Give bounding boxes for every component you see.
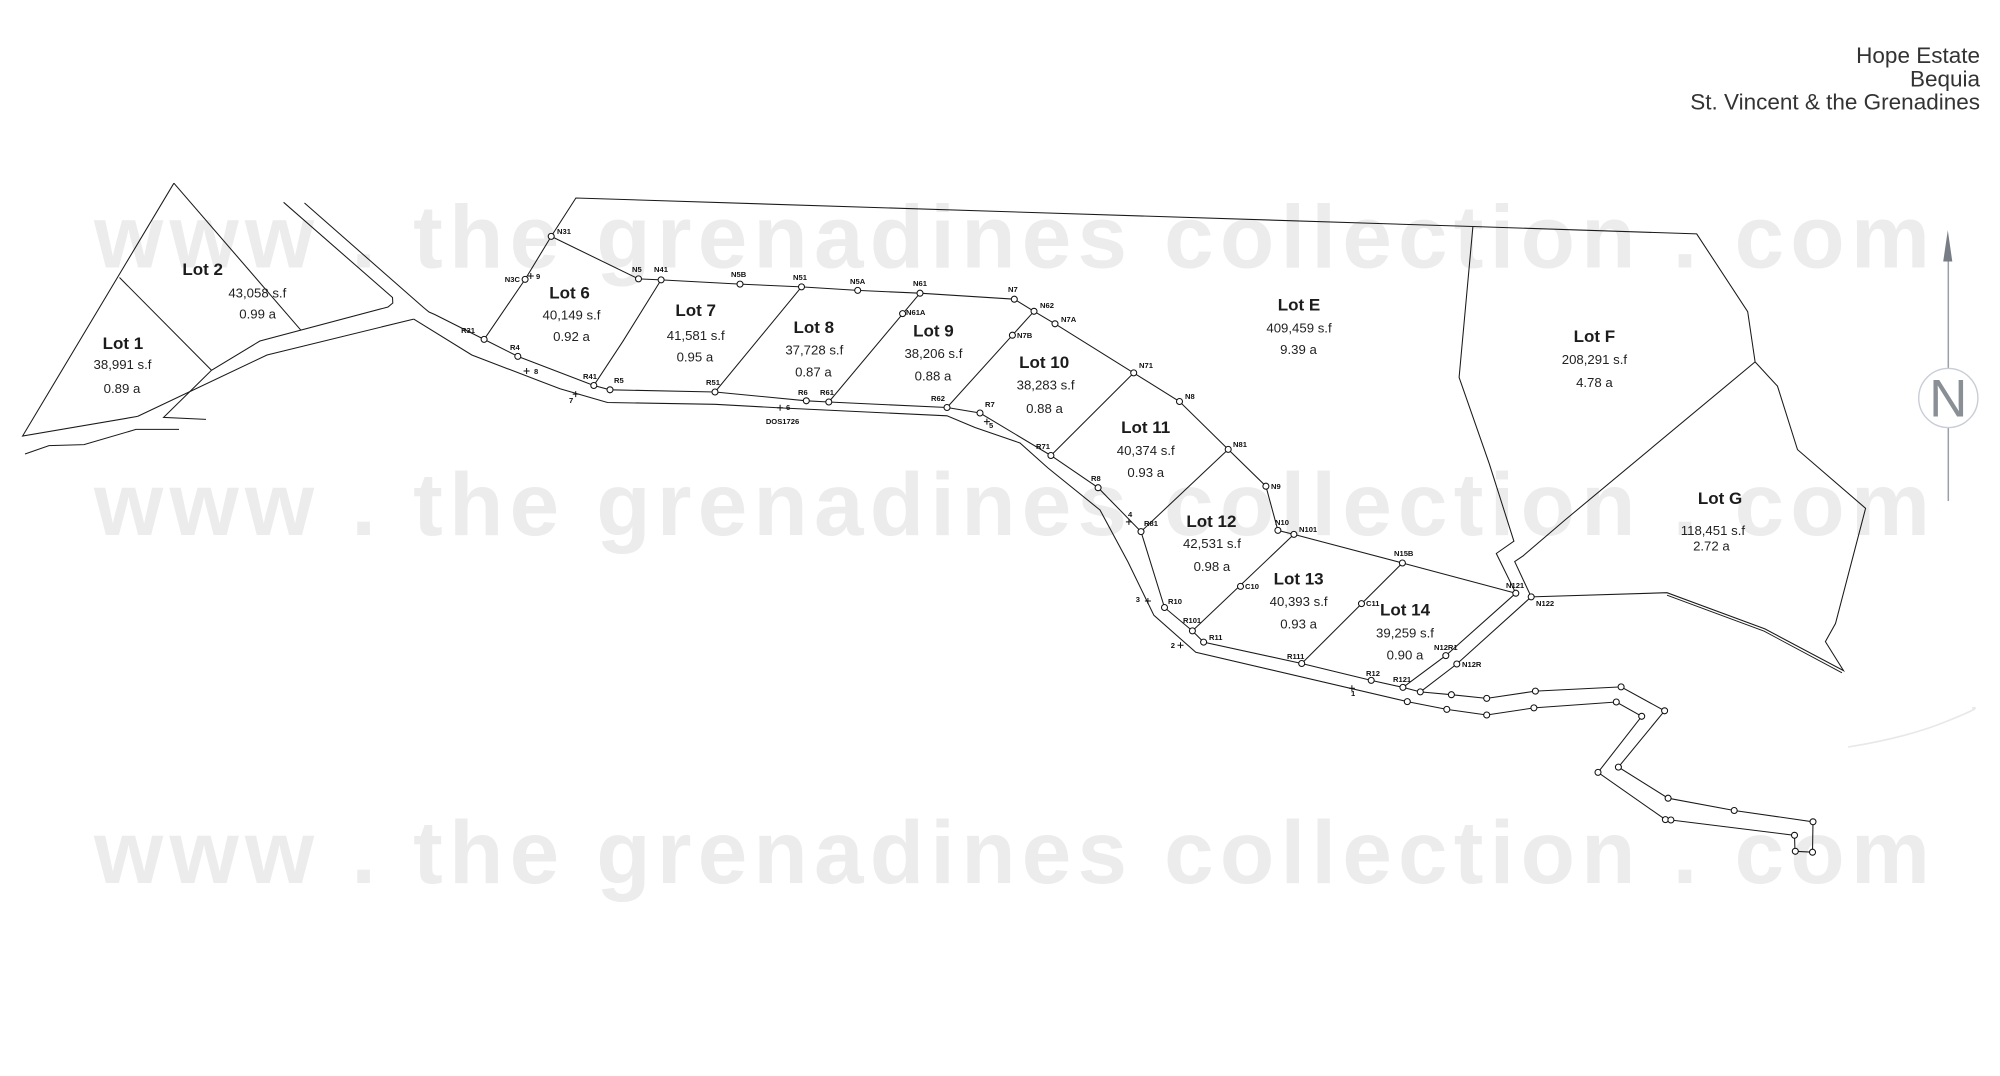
svg-text:N8: N8 bbox=[1185, 392, 1195, 401]
svg-text:N7A: N7A bbox=[1061, 315, 1077, 324]
svg-text:Lot 14: Lot 14 bbox=[1380, 601, 1431, 620]
svg-text:6: 6 bbox=[786, 403, 790, 412]
svg-text:Lot G: Lot G bbox=[1698, 489, 1742, 508]
svg-text:R10: R10 bbox=[1168, 597, 1182, 606]
svg-text:R51: R51 bbox=[706, 378, 721, 387]
svg-text:Lot 6: Lot 6 bbox=[549, 283, 590, 302]
svg-text:409,459 s.f: 409,459 s.f bbox=[1266, 321, 1332, 336]
svg-text:41,581 s.f: 41,581 s.f bbox=[667, 328, 725, 343]
svg-text:40,149 s.f: 40,149 s.f bbox=[543, 307, 601, 322]
svg-text:R7: R7 bbox=[985, 400, 995, 409]
svg-text:N3C: N3C bbox=[505, 275, 521, 284]
svg-text:R41: R41 bbox=[583, 372, 598, 381]
svg-text:R12: R12 bbox=[1366, 669, 1380, 678]
svg-text:Lot F: Lot F bbox=[1574, 327, 1616, 346]
svg-text:Lot 9: Lot 9 bbox=[913, 321, 954, 340]
svg-text:R62: R62 bbox=[931, 394, 945, 403]
svg-text:N7B: N7B bbox=[1017, 331, 1033, 340]
svg-text:N5B: N5B bbox=[731, 270, 747, 279]
svg-text:43,058 s.f: 43,058 s.f bbox=[228, 285, 286, 300]
svg-text:Lot 13: Lot 13 bbox=[1274, 569, 1324, 588]
svg-text:Lot 10: Lot 10 bbox=[1019, 353, 1069, 372]
svg-text:0.93 a: 0.93 a bbox=[1127, 465, 1164, 480]
svg-text:0.92 a: 0.92 a bbox=[553, 329, 590, 344]
svg-text:C11: C11 bbox=[1366, 599, 1380, 608]
svg-text:www . the grenadines collectio: www . the grenadines collection . com bbox=[93, 802, 1930, 902]
svg-text:Lot E: Lot E bbox=[1278, 296, 1321, 315]
svg-text:0.95 a: 0.95 a bbox=[677, 349, 714, 364]
svg-text:208,291 s.f: 208,291 s.f bbox=[1562, 352, 1628, 367]
svg-text:N121: N121 bbox=[1506, 581, 1525, 590]
svg-text:3: 3 bbox=[1136, 595, 1140, 604]
svg-text:Hope Estate: Hope Estate bbox=[1856, 43, 1980, 68]
svg-text:N71: N71 bbox=[1139, 361, 1154, 370]
svg-text:38,991 s.f: 38,991 s.f bbox=[94, 357, 152, 372]
svg-text:N15B: N15B bbox=[1394, 549, 1414, 558]
svg-text:39,259 s.f: 39,259 s.f bbox=[1376, 625, 1434, 640]
svg-text:N5A: N5A bbox=[850, 277, 866, 286]
svg-text:9: 9 bbox=[536, 272, 540, 281]
svg-text:R81: R81 bbox=[1144, 519, 1159, 528]
svg-text:Lot 7: Lot 7 bbox=[675, 301, 716, 320]
svg-text:N7: N7 bbox=[1008, 285, 1018, 294]
svg-text:Lot 11: Lot 11 bbox=[1121, 418, 1170, 437]
svg-text:N122: N122 bbox=[1536, 599, 1554, 608]
svg-text:Lot 12: Lot 12 bbox=[1186, 512, 1236, 531]
svg-text:R31: R31 bbox=[461, 326, 476, 335]
svg-text:0.89 a: 0.89 a bbox=[104, 381, 141, 396]
svg-text:www . the grenadines collectio: www . the grenadines collection . com bbox=[93, 187, 1930, 287]
svg-text:N61A: N61A bbox=[906, 308, 926, 317]
svg-text:N62: N62 bbox=[1040, 301, 1054, 310]
svg-text:C10: C10 bbox=[1245, 582, 1259, 591]
svg-text:N51: N51 bbox=[793, 273, 808, 282]
svg-text:N81: N81 bbox=[1233, 440, 1248, 449]
svg-text:R71: R71 bbox=[1036, 442, 1051, 451]
svg-text:N5: N5 bbox=[632, 265, 642, 274]
svg-text:R61: R61 bbox=[820, 388, 835, 397]
svg-text:N61: N61 bbox=[913, 279, 928, 288]
svg-text:0.87 a: 0.87 a bbox=[795, 365, 832, 380]
svg-text:www . the grenadines collectio: www . the grenadines collection . com bbox=[93, 454, 1930, 554]
svg-text:118,451 s.f: 118,451 s.f bbox=[1681, 523, 1746, 538]
svg-text:DOS1726: DOS1726 bbox=[766, 417, 799, 426]
svg-text:R4: R4 bbox=[510, 343, 520, 352]
svg-text:N31: N31 bbox=[557, 227, 572, 236]
svg-text:N9: N9 bbox=[1271, 482, 1281, 491]
svg-text:0.99 a: 0.99 a bbox=[239, 307, 276, 322]
svg-text:9.39 a: 9.39 a bbox=[1280, 342, 1317, 357]
svg-text:0.93 a: 0.93 a bbox=[1280, 616, 1317, 631]
svg-text:0.88 a: 0.88 a bbox=[1026, 401, 1063, 416]
svg-text:38,283 s.f: 38,283 s.f bbox=[1017, 378, 1075, 393]
svg-text:N12R1: N12R1 bbox=[1434, 643, 1458, 652]
svg-text:R121: R121 bbox=[1393, 675, 1412, 684]
svg-text:Lot 8: Lot 8 bbox=[793, 318, 834, 337]
svg-text:N10: N10 bbox=[1275, 518, 1289, 527]
svg-text:N101: N101 bbox=[1299, 525, 1318, 534]
svg-text:Bequia: Bequia bbox=[1910, 66, 1981, 91]
svg-text:2: 2 bbox=[1171, 641, 1175, 650]
svg-text:Lot 2: Lot 2 bbox=[182, 260, 223, 279]
svg-text:St. Vincent & the Grenadines: St. Vincent & the Grenadines bbox=[1690, 90, 1980, 115]
svg-text:N12R: N12R bbox=[1462, 660, 1482, 669]
svg-text:42,531 s.f: 42,531 s.f bbox=[1183, 536, 1241, 551]
svg-text:40,393 s.f: 40,393 s.f bbox=[1270, 594, 1328, 609]
svg-text:4.78 a: 4.78 a bbox=[1576, 375, 1613, 390]
svg-text:0.88 a: 0.88 a bbox=[915, 369, 952, 384]
svg-text:R111: R111 bbox=[1287, 652, 1305, 661]
svg-text:40,374 s.f: 40,374 s.f bbox=[1117, 443, 1175, 458]
svg-text:R8: R8 bbox=[1091, 474, 1101, 483]
svg-text:38,206 s.f: 38,206 s.f bbox=[904, 346, 962, 361]
svg-text:0.90 a: 0.90 a bbox=[1387, 647, 1424, 662]
svg-text:N: N bbox=[1929, 370, 1967, 429]
svg-text:R6: R6 bbox=[798, 388, 808, 397]
svg-text:R11: R11 bbox=[1209, 633, 1223, 642]
svg-text:R101: R101 bbox=[1183, 616, 1202, 625]
svg-text:8: 8 bbox=[534, 367, 538, 376]
svg-text:2.72 a: 2.72 a bbox=[1693, 539, 1730, 554]
svg-text:7: 7 bbox=[569, 396, 573, 405]
svg-text:Lot 1: Lot 1 bbox=[103, 334, 144, 353]
svg-text:37,728 s.f: 37,728 s.f bbox=[785, 343, 843, 358]
svg-text:R5: R5 bbox=[614, 376, 624, 385]
svg-text:0.98 a: 0.98 a bbox=[1194, 559, 1231, 574]
svg-text:N41: N41 bbox=[654, 265, 669, 274]
